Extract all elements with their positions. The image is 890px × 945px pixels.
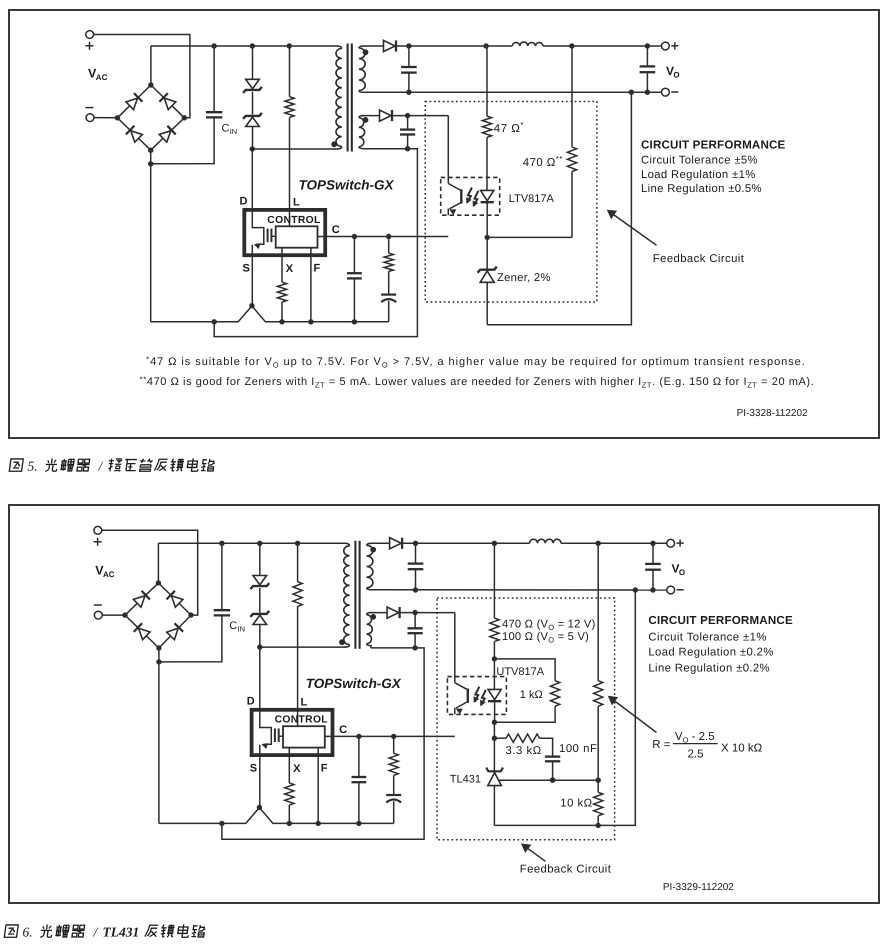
svg-text:O: O <box>673 71 679 80</box>
svg-text:10 kΩ: 10 kΩ <box>560 797 592 809</box>
svg-text:Line Regulation ±0.2%: Line Regulation ±0.2% <box>648 662 770 674</box>
svg-text:Load Regulation ±0.2%: Load Regulation ±0.2% <box>648 647 773 659</box>
svg-text:AC: AC <box>96 73 108 82</box>
svg-text:Feedback Circuit: Feedback Circuit <box>520 864 612 876</box>
svg-text:VO - 2.5: VO - 2.5 <box>675 731 715 745</box>
svg-text:CIRCUIT PERFORMANCE: CIRCUIT PERFORMANCE <box>648 614 793 627</box>
svg-text:C: C <box>332 224 340 236</box>
svg-text:UTV817A: UTV817A <box>496 666 544 678</box>
svg-text:TL431: TL431 <box>450 774 481 786</box>
svg-text:S: S <box>243 263 250 275</box>
svg-text:CONTROL: CONTROL <box>275 715 328 726</box>
svg-text:CIRCUIT PERFORMANCE: CIRCUIT PERFORMANCE <box>641 138 786 151</box>
svg-text:Circuit Tolerance ±5%: Circuit Tolerance ±5% <box>641 155 758 167</box>
svg-text:Line Regulation ±0.5%: Line Regulation ±0.5% <box>641 183 762 195</box>
svg-text:R =: R = <box>652 739 671 751</box>
svg-text:TL431: TL431 <box>103 925 140 940</box>
svg-text:X: X <box>286 263 294 275</box>
svg-text:C: C <box>339 724 347 736</box>
svg-text:6.: 6. <box>23 925 33 940</box>
svg-text:S: S <box>250 762 257 774</box>
svg-text:LTV817A: LTV817A <box>509 193 555 205</box>
svg-text:Feedback Circuit: Feedback Circuit <box>653 253 745 265</box>
svg-text:D: D <box>240 196 248 208</box>
svg-text:IN: IN <box>230 127 238 136</box>
svg-text:*47 Ω is suitable for VO up to: *47 Ω is suitable for VO up to 7.5V. For… <box>146 355 806 370</box>
svg-text:X: X <box>293 763 301 775</box>
svg-text:100 Ω (VO = 5 V): 100 Ω (VO = 5 V) <box>502 631 589 645</box>
svg-text:Circuit Tolerance ±1%: Circuit Tolerance ±1% <box>648 631 766 643</box>
svg-text:F: F <box>321 762 328 774</box>
svg-text:CONTROL: CONTROL <box>267 215 320 226</box>
svg-text:470 Ω**: 470 Ω** <box>523 155 563 170</box>
svg-text:C: C <box>222 123 230 135</box>
svg-text:100 nF: 100 nF <box>559 743 597 755</box>
svg-text:O: O <box>679 568 685 577</box>
svg-text:L: L <box>293 197 300 209</box>
svg-text:/: / <box>98 459 104 474</box>
svg-text:470 Ω (VO = 12 V): 470 Ω (VO = 12 V) <box>502 618 596 632</box>
svg-text:AC: AC <box>103 570 115 579</box>
svg-text:D: D <box>247 695 255 707</box>
svg-text:C: C <box>229 620 237 632</box>
svg-text:PI-3328-112202: PI-3328-112202 <box>737 408 808 419</box>
svg-text:X 10 kΩ: X 10 kΩ <box>721 742 763 754</box>
svg-text:2.5: 2.5 <box>688 748 704 760</box>
svg-text:1 kΩ: 1 kΩ <box>520 689 543 701</box>
svg-text:IN: IN <box>238 625 246 634</box>
svg-text:Load Regulation ±1%: Load Regulation ±1% <box>641 169 756 181</box>
svg-text:F: F <box>314 263 321 275</box>
svg-text:PI-3329-112202: PI-3329-112202 <box>663 882 734 893</box>
svg-text:TOPSwitch-GX: TOPSwitch-GX <box>299 178 395 193</box>
svg-text:TOPSwitch-GX: TOPSwitch-GX <box>306 676 402 691</box>
svg-text:L: L <box>301 696 308 708</box>
svg-text:5.: 5. <box>28 459 38 474</box>
svg-text:3.3 kΩ: 3.3 kΩ <box>506 745 542 757</box>
svg-text:/: / <box>93 925 99 940</box>
svg-text:Zener, 2%: Zener, 2% <box>497 272 551 284</box>
svg-text:**470 Ω is good for Zeners wit: **470 Ω is good for Zeners with IZT = 5 … <box>140 375 815 390</box>
svg-text:47 Ω*: 47 Ω* <box>494 120 524 135</box>
